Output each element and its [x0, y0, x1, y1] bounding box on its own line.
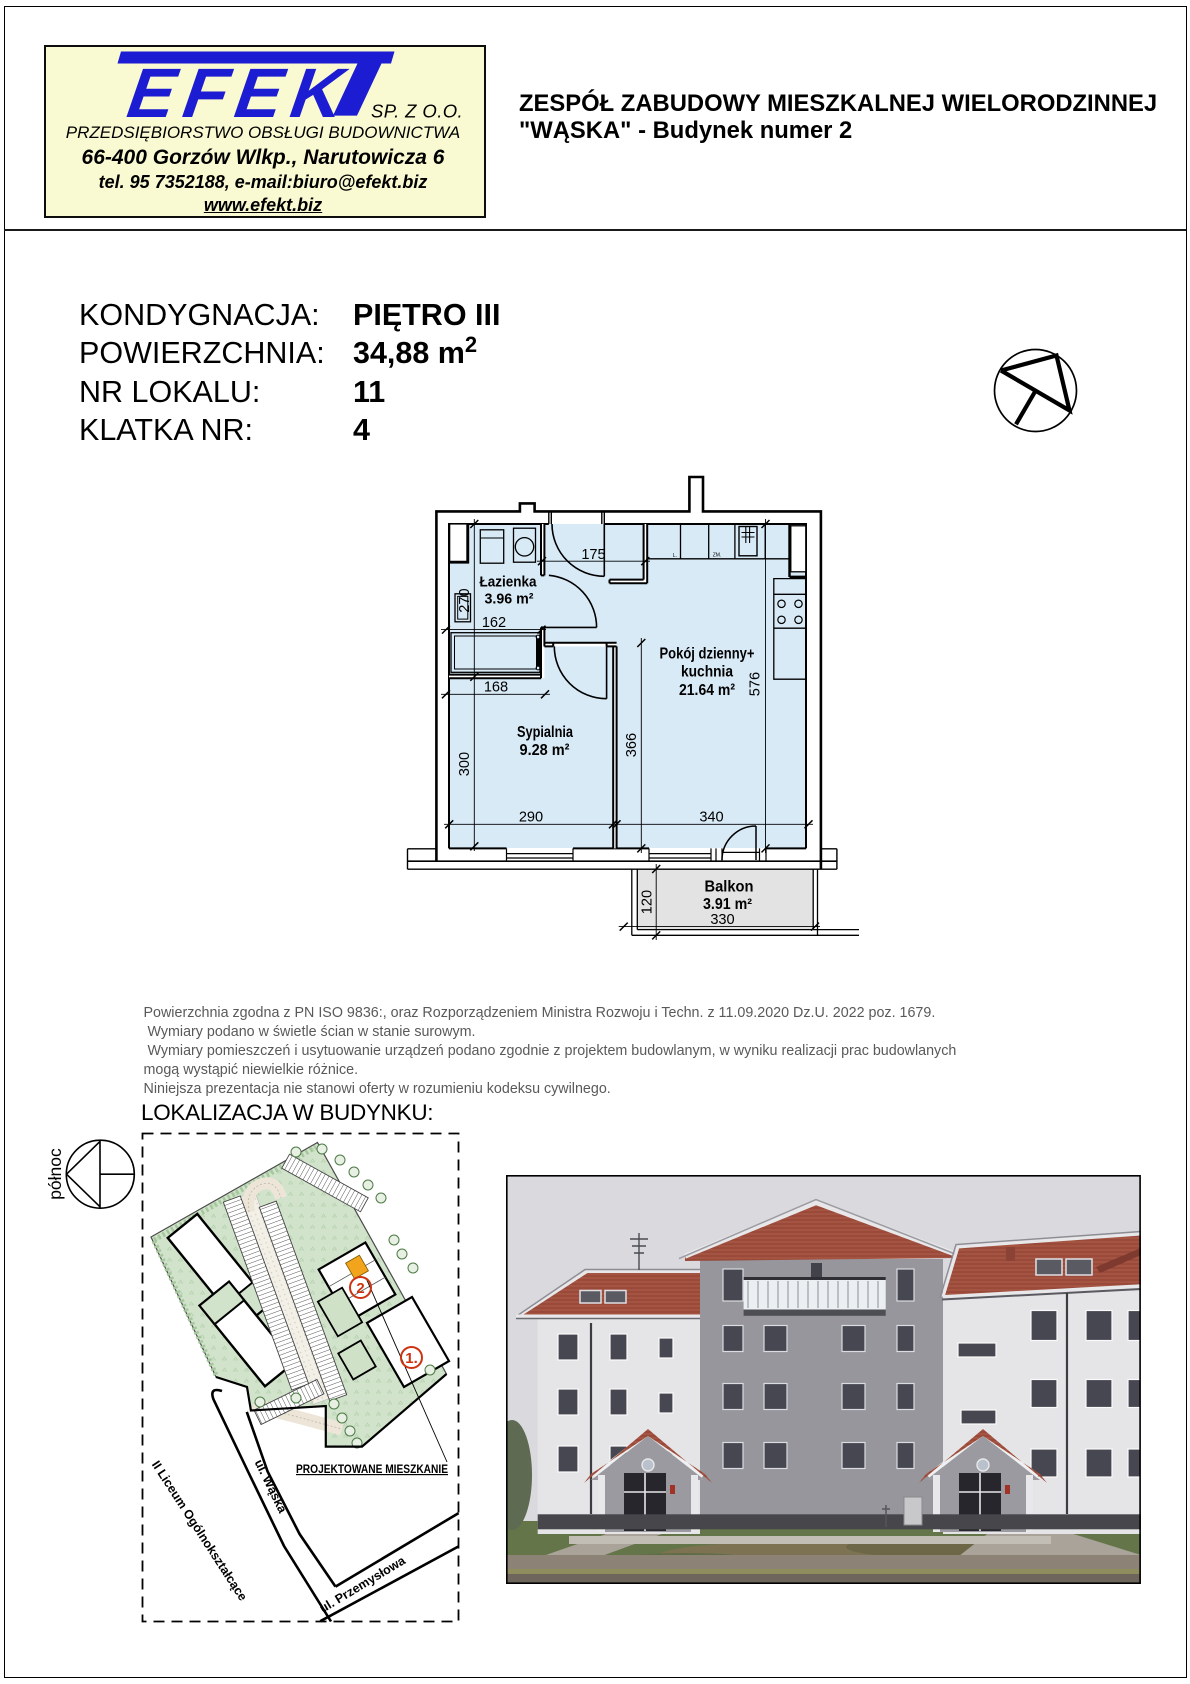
svg-text:9.28 m²: 9.28 m²	[520, 742, 570, 759]
svg-text:3.96 m²: 3.96 m²	[485, 591, 534, 608]
svg-text:ul. Przemysłowa: ul. Przemysłowa	[317, 1553, 408, 1616]
svg-text:21.64 m²: 21.64 m²	[679, 682, 735, 699]
svg-text:II Liceum Ogólnokształcące: II Liceum Ogólnokształcące	[149, 1458, 250, 1603]
svg-text:Pokój dzienny+: Pokój dzienny+	[660, 646, 755, 663]
svg-text:2: 2	[356, 1280, 364, 1297]
svg-text:162: 162	[482, 615, 506, 631]
svg-text:330: 330	[710, 912, 734, 928]
svg-text:270: 270	[457, 588, 473, 612]
svg-text:północ: północ	[45, 1148, 65, 1200]
svg-text:576: 576	[747, 672, 763, 696]
svg-text:290: 290	[519, 810, 543, 826]
svg-text:kuchnia: kuchnia	[681, 664, 733, 681]
svg-text:Sypialnia: Sypialnia	[517, 724, 573, 741]
svg-text:L.: L.	[673, 553, 677, 559]
svg-text:168: 168	[484, 680, 508, 696]
svg-text:340: 340	[699, 810, 723, 826]
svg-text:300: 300	[457, 752, 473, 776]
svg-text:3.91 m²: 3.91 m²	[703, 896, 752, 913]
svg-text:Balkon: Balkon	[705, 879, 754, 896]
svg-text:366: 366	[624, 733, 640, 757]
svg-text:1.: 1.	[405, 1350, 418, 1367]
svg-text:PROJEKTOWANE MIESZKANIE: PROJEKTOWANE MIESZKANIE	[296, 1462, 448, 1476]
svg-text:ul. Wąska: ul. Wąska	[252, 1457, 290, 1516]
svg-text:175: 175	[581, 547, 605, 563]
svg-text:Łazienka: Łazienka	[480, 574, 538, 591]
svg-text:120: 120	[640, 890, 656, 914]
svg-text:ZM.: ZM.	[713, 553, 722, 559]
